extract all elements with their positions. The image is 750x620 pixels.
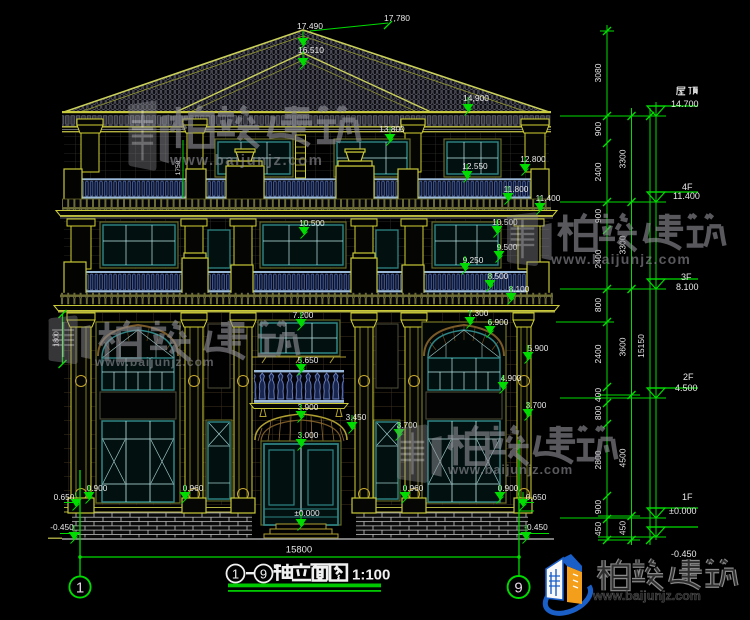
svg-text:4500: 4500 xyxy=(618,448,628,467)
svg-text:17,780: 17,780 xyxy=(384,13,410,23)
svg-text:800: 800 xyxy=(593,298,603,312)
svg-text:10.500: 10.500 xyxy=(299,218,325,228)
svg-text:3.700: 3.700 xyxy=(526,400,547,410)
svg-text:0.960: 0.960 xyxy=(403,483,424,493)
svg-text:12.800: 12.800 xyxy=(520,154,546,164)
svg-text:1F: 1F xyxy=(682,492,693,502)
svg-text:2400: 2400 xyxy=(593,344,603,363)
svg-text:8.500: 8.500 xyxy=(488,271,509,281)
svg-text:13.800: 13.800 xyxy=(379,124,405,134)
svg-text:14.700: 14.700 xyxy=(671,99,699,109)
svg-text:16.510: 16.510 xyxy=(298,45,324,55)
svg-text:9: 9 xyxy=(514,580,522,597)
svg-text:www.baijunjz.com: www.baijunjz.com xyxy=(592,589,701,603)
svg-text:800: 800 xyxy=(593,406,603,420)
svg-text:5.900: 5.900 xyxy=(528,343,549,353)
svg-text:-0.450: -0.450 xyxy=(50,522,74,532)
svg-text:3600: 3600 xyxy=(618,337,628,356)
svg-text:www.baijunjz.com: www.baijunjz.com xyxy=(447,462,573,477)
svg-text:11.400: 11.400 xyxy=(536,193,561,203)
svg-text:3080: 3080 xyxy=(593,63,603,82)
svg-text:9: 9 xyxy=(260,567,267,582)
svg-text:4.500: 4.500 xyxy=(675,383,698,393)
svg-text:3300: 3300 xyxy=(618,149,628,168)
svg-text:3.450: 3.450 xyxy=(346,412,367,422)
svg-text:900: 900 xyxy=(593,122,603,136)
svg-text:1: 1 xyxy=(76,580,84,597)
svg-text:900: 900 xyxy=(593,500,603,514)
svg-text:0.900: 0.900 xyxy=(87,483,108,493)
svg-text:15150: 15150 xyxy=(636,334,646,358)
svg-text:7.300: 7.300 xyxy=(468,308,489,318)
svg-text:6.900: 6.900 xyxy=(488,317,509,327)
svg-text:3F: 3F xyxy=(681,272,692,282)
svg-text:www.baijunjz.com: www.baijunjz.com xyxy=(94,355,215,369)
svg-text:12.550: 12.550 xyxy=(462,161,488,171)
svg-text:14,900: 14,900 xyxy=(463,93,489,103)
svg-text:1: 1 xyxy=(232,567,239,582)
svg-text:400: 400 xyxy=(593,388,603,402)
svg-text:450: 450 xyxy=(593,522,603,536)
svg-text:0.900: 0.900 xyxy=(498,483,519,493)
svg-text:15800: 15800 xyxy=(286,545,312,556)
svg-text:0.650: 0.650 xyxy=(526,492,547,502)
svg-text:2F: 2F xyxy=(683,372,694,382)
svg-text:www.baijunjz.com: www.baijunjz.com xyxy=(169,152,323,169)
svg-text:11.400: 11.400 xyxy=(673,191,700,201)
svg-text:-0.450: -0.450 xyxy=(524,522,548,532)
svg-text:1:100: 1:100 xyxy=(352,567,390,584)
svg-text:11.800: 11.800 xyxy=(504,184,529,194)
svg-text:±0.000: ±0.000 xyxy=(294,508,320,518)
svg-text:4.900: 4.900 xyxy=(501,373,522,383)
svg-text:8.100: 8.100 xyxy=(509,284,530,294)
svg-text:±0.000: ±0.000 xyxy=(669,506,696,516)
svg-text:0.960: 0.960 xyxy=(183,483,204,493)
svg-text:2400: 2400 xyxy=(593,162,603,181)
svg-text:www.baijunjz.com: www.baijunjz.com xyxy=(550,251,691,267)
svg-text:450: 450 xyxy=(618,521,628,535)
svg-text:-0.450: -0.450 xyxy=(671,549,697,559)
svg-text:7.200: 7.200 xyxy=(293,310,314,320)
svg-text:17.490: 17.490 xyxy=(297,21,323,31)
svg-text:8.100: 8.100 xyxy=(676,282,699,292)
